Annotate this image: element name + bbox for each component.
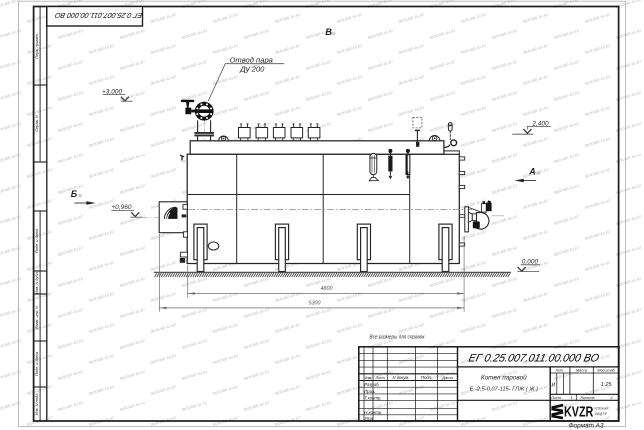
- svg-text:Формат А3: Формат А3: [569, 423, 605, 430]
- svg-text:Пров.: Пров.: [364, 389, 375, 394]
- svg-text:И: И: [552, 382, 556, 388]
- svg-text:Подп. и дата: Подп. и дата: [34, 228, 39, 253]
- svg-text:Утв.: Утв.: [364, 416, 374, 421]
- svg-text:ЗАВОД РЗР: ЗАВОД РЗР: [595, 412, 608, 416]
- svg-text:Справ. N: Справ. N: [34, 115, 39, 131]
- svg-text:Разраб.: Разраб.: [364, 382, 380, 387]
- svg-text:Лист: Лист: [375, 376, 385, 380]
- svg-text:4800: 4800: [321, 286, 333, 292]
- svg-text:KVZR: KVZR: [564, 404, 594, 420]
- svg-text:Листов: Листов: [579, 395, 594, 400]
- svg-text:Т.контр.: Т.контр.: [364, 396, 381, 401]
- svg-text:Взам. инв. N: Взам. инв. N: [34, 306, 39, 329]
- svg-text:КОТЕЛЬНЫЙ: КОТЕЛЬНЫЙ: [595, 406, 609, 410]
- svg-text:Е -2,5-0,07-115- ГЛЖ ( Ж ): Е -2,5-0,07-115- ГЛЖ ( Ж ): [470, 386, 538, 392]
- svg-text:Лит.: Лит.: [555, 369, 565, 373]
- svg-text:1:25: 1:25: [601, 382, 613, 388]
- svg-text:Подп.: Подп.: [421, 375, 432, 380]
- svg-text:Н.контр.: Н.контр.: [364, 410, 382, 415]
- svg-text:Инв. N дубл.: Инв. N дубл.: [34, 271, 39, 294]
- svg-text:ЕГ 0.25.007.011.00.000 ВО: ЕГ 0.25.007.011.00.000 ВО: [54, 11, 143, 20]
- svg-text:5300: 5300: [309, 301, 321, 307]
- svg-text:Перв. примен.: Перв. примен.: [34, 33, 39, 59]
- svg-text:Дата: Дата: [441, 375, 453, 380]
- svg-text:ЕГ 0.25.007.011.00.000 ВО: ЕГ 0.25.007.011.00.000 ВО: [467, 353, 600, 365]
- svg-text:Изм.: Изм.: [365, 376, 372, 380]
- svg-text:Масштаб: Масштаб: [597, 369, 615, 373]
- svg-text:Отвод пара: Отвод пара: [230, 55, 273, 64]
- svg-text:Подп. и дата: Подп. и дата: [34, 351, 39, 376]
- svg-text:1: 1: [570, 395, 572, 400]
- svg-text:А: А: [528, 166, 536, 176]
- svg-text:N докум.: N докум.: [393, 375, 410, 380]
- svg-text:Котел паровой: Котел паровой: [481, 374, 527, 382]
- svg-text:Ду 200: Ду 200: [239, 65, 265, 74]
- svg-text:Инв. N подл.: Инв. N подл.: [34, 393, 39, 416]
- svg-text:Лист: Лист: [550, 395, 562, 400]
- svg-text:Масса: Масса: [576, 369, 587, 373]
- svg-text:Все размеры для справок: Все размеры для справок: [370, 335, 425, 341]
- svg-text:Б: Б: [71, 189, 78, 199]
